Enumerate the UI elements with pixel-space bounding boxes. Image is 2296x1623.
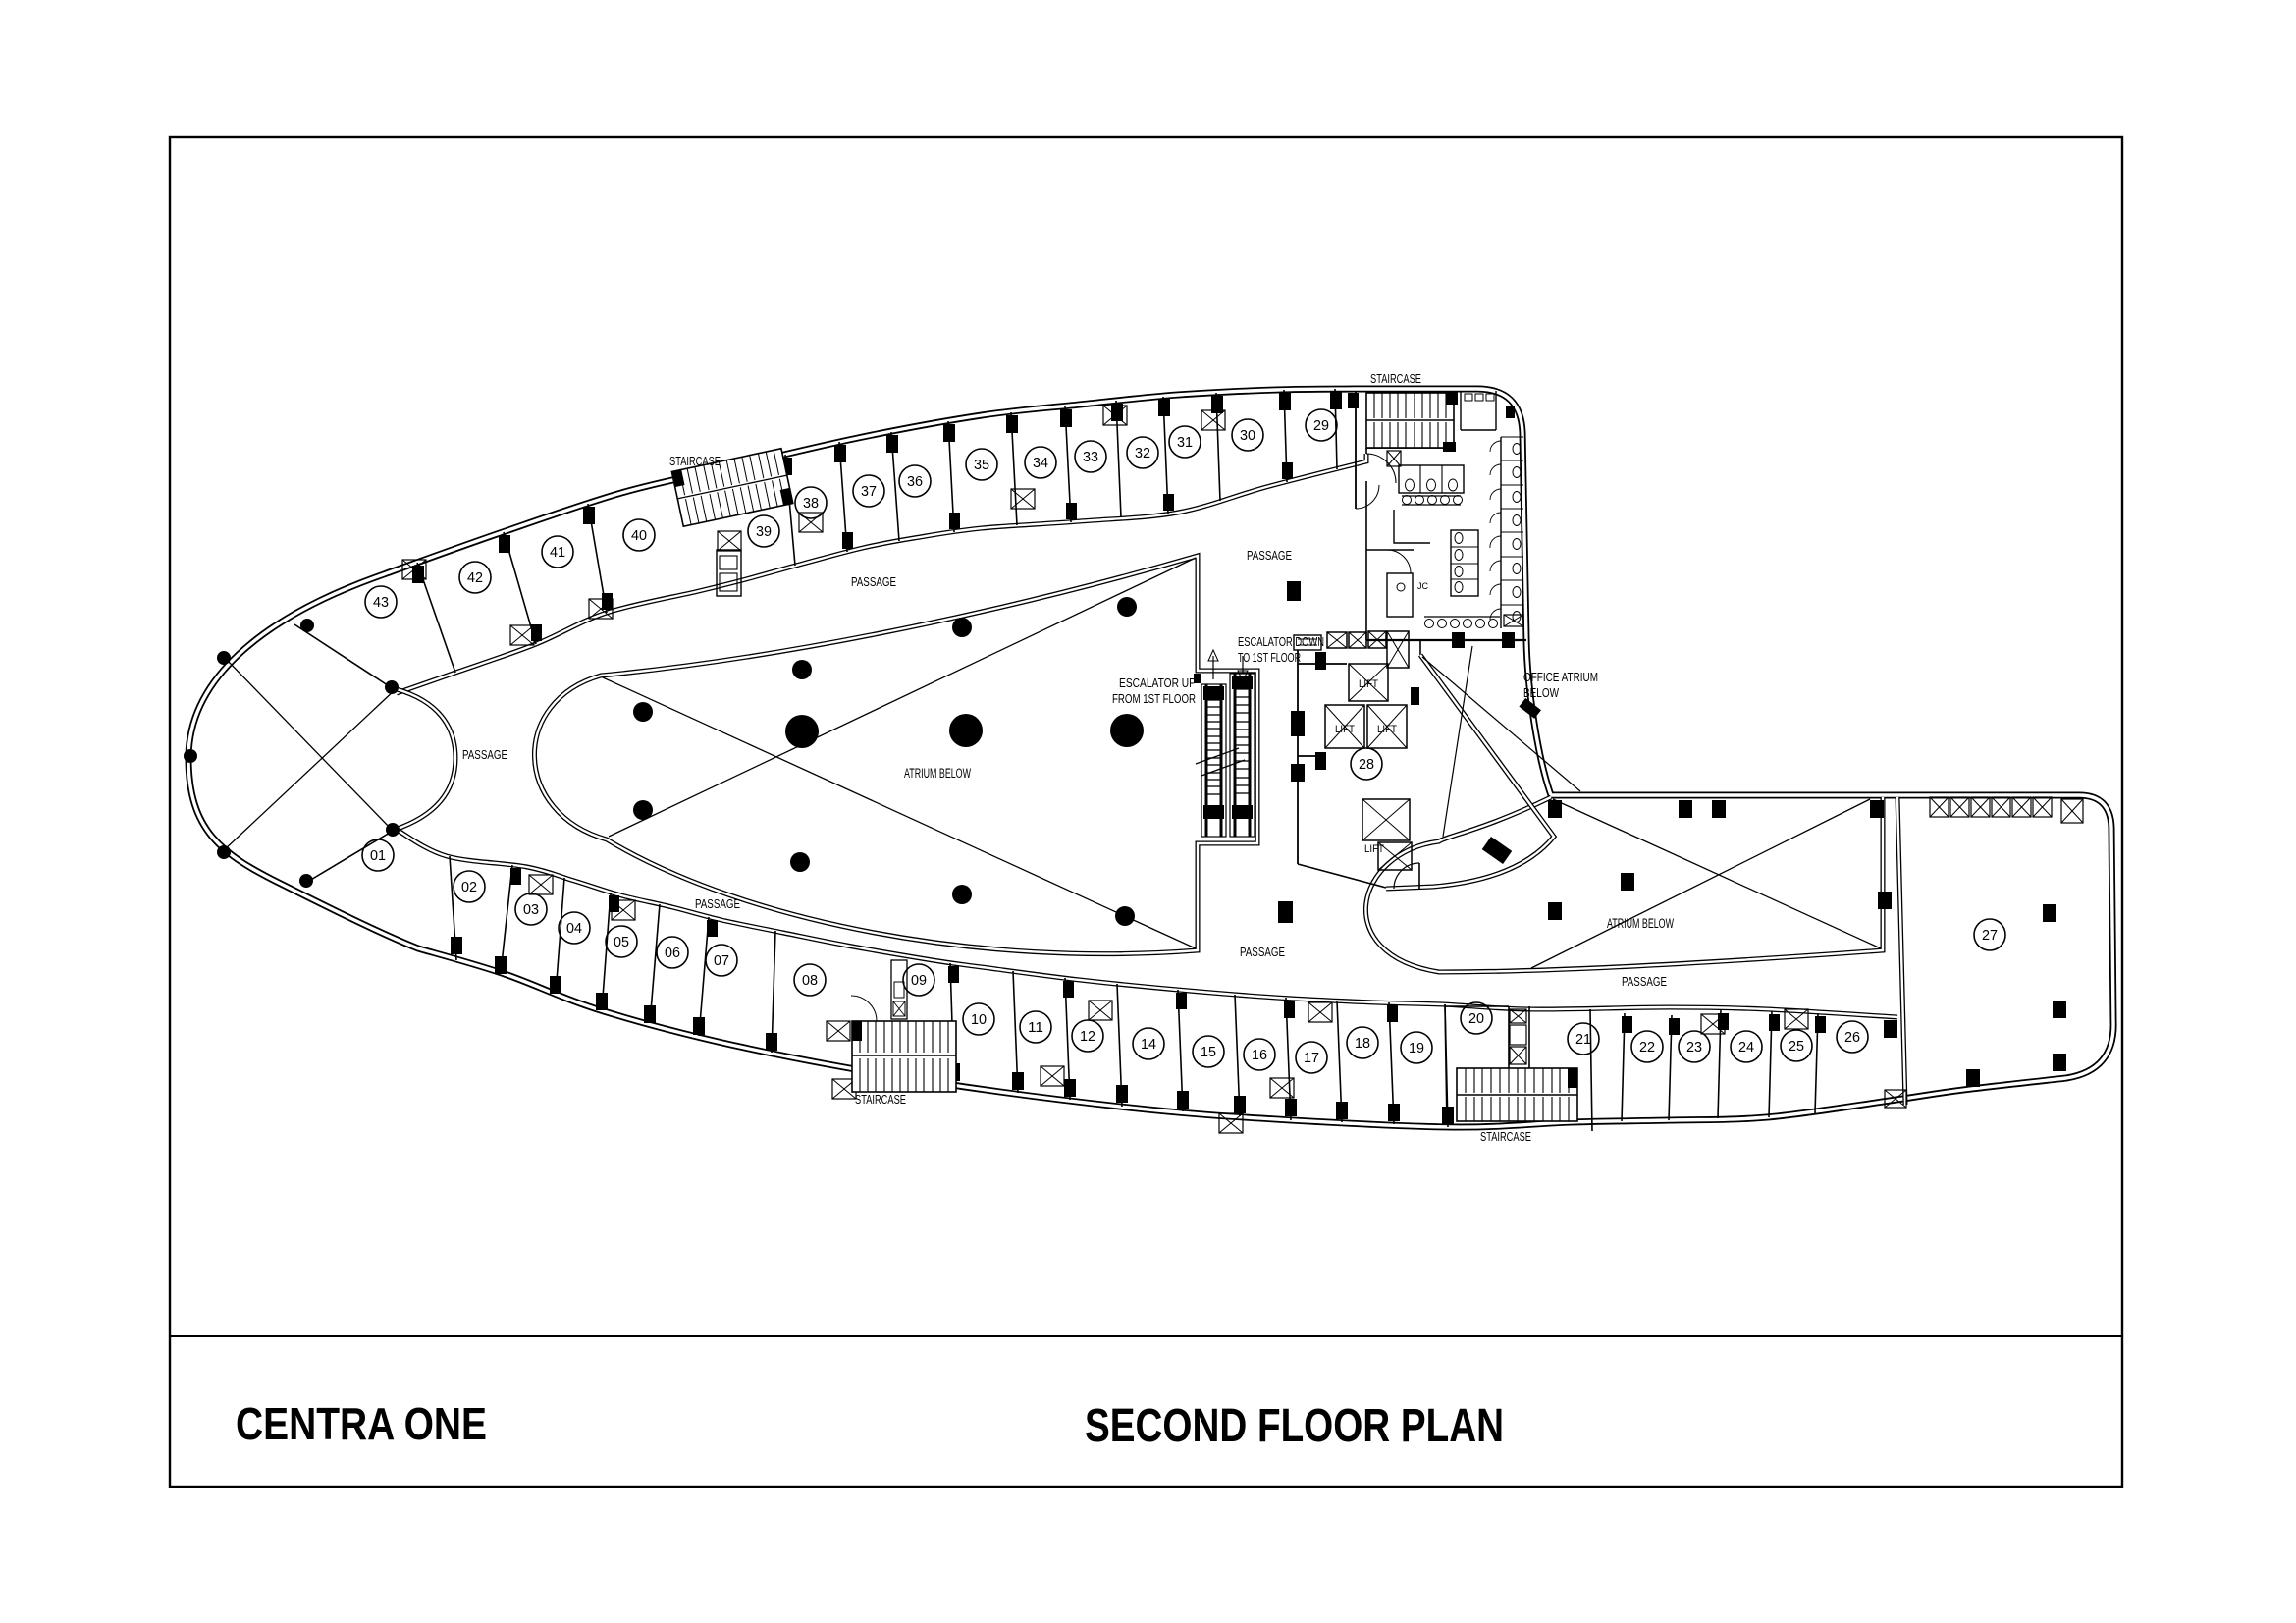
- svg-text:01: 01: [370, 848, 386, 864]
- svg-text:08: 08: [802, 973, 818, 989]
- svg-text:36: 36: [907, 474, 923, 490]
- svg-text:TO 1ST FLOOR: TO 1ST FLOOR: [1238, 651, 1301, 665]
- svg-text:23: 23: [1686, 1040, 1702, 1055]
- svg-text:42: 42: [467, 570, 483, 586]
- svg-text:LIFT: LIFT: [1377, 724, 1397, 735]
- svg-text:02: 02: [461, 880, 477, 895]
- svg-text:LIFT: LIFT: [1359, 678, 1378, 690]
- svg-text:ATRIUM BELOW: ATRIUM BELOW: [904, 766, 971, 781]
- svg-text:20: 20: [1468, 1011, 1484, 1027]
- svg-text:CENTRA ONE: CENTRA ONE: [236, 1398, 487, 1449]
- svg-text:40: 40: [631, 528, 647, 544]
- svg-text:16: 16: [1252, 1048, 1267, 1063]
- svg-text:34: 34: [1033, 456, 1048, 471]
- svg-text:PASSAGE: PASSAGE: [851, 574, 896, 589]
- svg-text:JC: JC: [1417, 581, 1429, 591]
- svg-text:LIFT: LIFT: [1364, 843, 1384, 855]
- svg-text:PASSAGE: PASSAGE: [1622, 974, 1667, 989]
- svg-text:PASSAGE: PASSAGE: [1240, 945, 1285, 959]
- svg-text:12: 12: [1080, 1029, 1095, 1045]
- svg-text:FROM 1ST FLOOR: FROM 1ST FLOOR: [1112, 692, 1196, 706]
- svg-text:29: 29: [1313, 418, 1329, 434]
- svg-text:33: 33: [1083, 450, 1098, 465]
- svg-text:10: 10: [971, 1012, 987, 1028]
- svg-text:26: 26: [1844, 1030, 1860, 1046]
- svg-text:BELOW: BELOW: [1523, 686, 1559, 700]
- svg-text:27: 27: [1982, 928, 1998, 944]
- svg-text:STAIRCASE: STAIRCASE: [669, 454, 721, 468]
- svg-text:15: 15: [1201, 1045, 1216, 1060]
- svg-text:09: 09: [911, 973, 927, 989]
- svg-text:38: 38: [803, 496, 819, 512]
- svg-text:STAIRCASE: STAIRCASE: [1480, 1129, 1531, 1144]
- svg-text:43: 43: [373, 595, 389, 611]
- svg-text:06: 06: [665, 946, 680, 961]
- svg-text:ESCALATOR DOWN: ESCALATOR DOWN: [1238, 635, 1324, 649]
- svg-text:22: 22: [1639, 1040, 1655, 1055]
- svg-text:04: 04: [566, 921, 582, 937]
- svg-text:30: 30: [1240, 428, 1255, 444]
- svg-text:05: 05: [614, 935, 629, 950]
- svg-text:PASSAGE: PASSAGE: [695, 896, 740, 911]
- svg-text:31: 31: [1177, 435, 1193, 451]
- svg-text:PASSAGE: PASSAGE: [1247, 548, 1292, 563]
- svg-text:19: 19: [1409, 1041, 1424, 1056]
- svg-text:STAIRCASE: STAIRCASE: [1370, 371, 1421, 386]
- svg-text:ATRIUM BELOW: ATRIUM BELOW: [1607, 916, 1674, 931]
- svg-text:39: 39: [756, 524, 772, 540]
- svg-text:24: 24: [1738, 1040, 1754, 1055]
- svg-text:07: 07: [714, 953, 729, 969]
- svg-text:ESCALATOR UP: ESCALATOR UP: [1119, 676, 1196, 690]
- svg-text:32: 32: [1135, 446, 1150, 461]
- svg-text:21: 21: [1575, 1032, 1591, 1048]
- svg-text:18: 18: [1355, 1036, 1370, 1052]
- svg-text:LIFT: LIFT: [1335, 724, 1355, 735]
- svg-text:14: 14: [1141, 1037, 1156, 1053]
- svg-text:OFFICE ATRIUM: OFFICE ATRIUM: [1523, 671, 1598, 684]
- svg-text:28: 28: [1359, 757, 1374, 773]
- svg-text:SECOND FLOOR PLAN: SECOND FLOOR PLAN: [1085, 1400, 1504, 1452]
- svg-text:03: 03: [523, 902, 539, 918]
- svg-text:STAIRCASE: STAIRCASE: [855, 1092, 906, 1107]
- svg-text:41: 41: [550, 545, 565, 561]
- svg-text:35: 35: [974, 458, 989, 473]
- svg-text:PASSAGE: PASSAGE: [462, 747, 507, 762]
- svg-text:11: 11: [1028, 1020, 1043, 1036]
- svg-text:17: 17: [1304, 1051, 1319, 1066]
- svg-text:25: 25: [1789, 1039, 1804, 1055]
- svg-text:37: 37: [861, 484, 877, 500]
